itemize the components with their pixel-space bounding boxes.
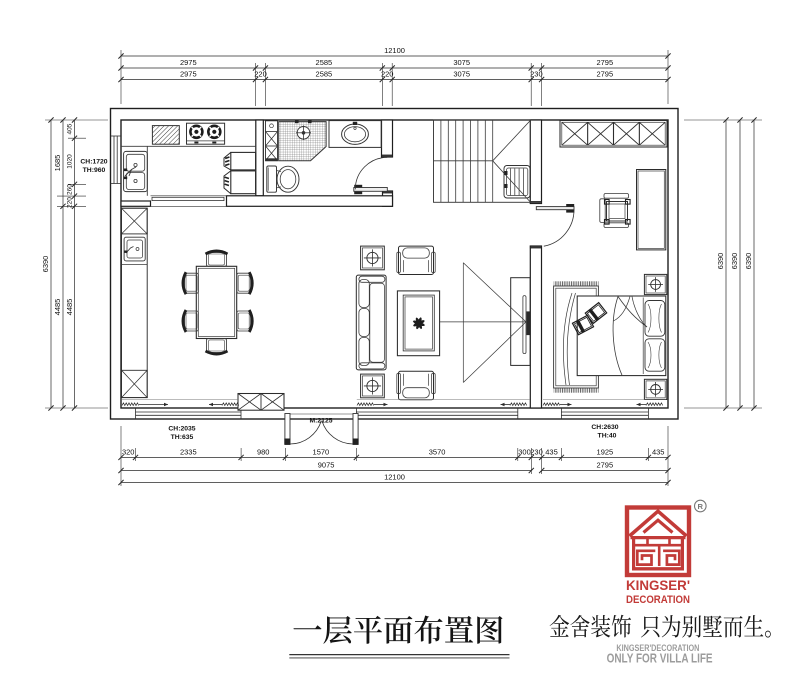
svg-text:6390: 6390 bbox=[716, 253, 725, 270]
svg-text:DECORATION: DECORATION bbox=[626, 594, 690, 606]
svg-text:980: 980 bbox=[257, 448, 270, 457]
svg-text:TH:960: TH:960 bbox=[83, 167, 106, 174]
svg-text:1570: 1570 bbox=[313, 448, 330, 457]
svg-text:320: 320 bbox=[122, 448, 135, 457]
svg-text:435: 435 bbox=[545, 448, 558, 457]
svg-text:TH:635: TH:635 bbox=[171, 434, 194, 441]
svg-text:260: 260 bbox=[66, 184, 73, 195]
svg-text:6390: 6390 bbox=[41, 256, 50, 273]
svg-text:CH:2035: CH:2035 bbox=[168, 426, 195, 433]
svg-text:405: 405 bbox=[66, 123, 73, 134]
svg-text:230: 230 bbox=[530, 448, 543, 457]
svg-text:2795: 2795 bbox=[596, 70, 613, 79]
svg-text:M:2125: M:2125 bbox=[309, 418, 332, 425]
svg-text:4485: 4485 bbox=[65, 299, 74, 316]
svg-text:3075: 3075 bbox=[453, 70, 470, 79]
svg-text:9075: 9075 bbox=[318, 461, 335, 470]
svg-text:TH:40: TH:40 bbox=[598, 433, 617, 440]
svg-text:CH:1720: CH:1720 bbox=[80, 159, 107, 166]
svg-text:2975: 2975 bbox=[180, 70, 197, 79]
svg-text:3570: 3570 bbox=[429, 448, 446, 457]
svg-text:2585: 2585 bbox=[316, 58, 333, 67]
svg-text:CH:2630: CH:2630 bbox=[591, 424, 618, 431]
svg-text:1020: 1020 bbox=[66, 154, 73, 169]
svg-text:2795: 2795 bbox=[596, 461, 613, 470]
svg-text:R: R bbox=[698, 502, 704, 511]
svg-text:3075: 3075 bbox=[453, 58, 470, 67]
svg-text:6390: 6390 bbox=[730, 253, 739, 270]
svg-text:220: 220 bbox=[254, 70, 267, 79]
svg-text:220: 220 bbox=[381, 70, 394, 79]
svg-text:4485: 4485 bbox=[53, 299, 62, 316]
svg-text:KINGSER': KINGSER' bbox=[626, 577, 690, 593]
svg-text:ONLY FOR VILLA LIFE: ONLY FOR VILLA LIFE bbox=[607, 650, 713, 665]
svg-text:12100: 12100 bbox=[384, 473, 405, 482]
svg-text:2585: 2585 bbox=[316, 70, 333, 79]
svg-text:435: 435 bbox=[652, 448, 665, 457]
svg-text:1685: 1685 bbox=[53, 155, 62, 172]
svg-text:12100: 12100 bbox=[384, 46, 405, 55]
svg-text:230: 230 bbox=[530, 70, 543, 79]
svg-text:2795: 2795 bbox=[596, 58, 613, 67]
svg-text:6390: 6390 bbox=[744, 253, 753, 270]
svg-text:1925: 1925 bbox=[597, 448, 614, 457]
svg-text:2335: 2335 bbox=[180, 448, 197, 457]
svg-text:300: 300 bbox=[518, 448, 531, 457]
svg-text:2975: 2975 bbox=[180, 58, 197, 67]
